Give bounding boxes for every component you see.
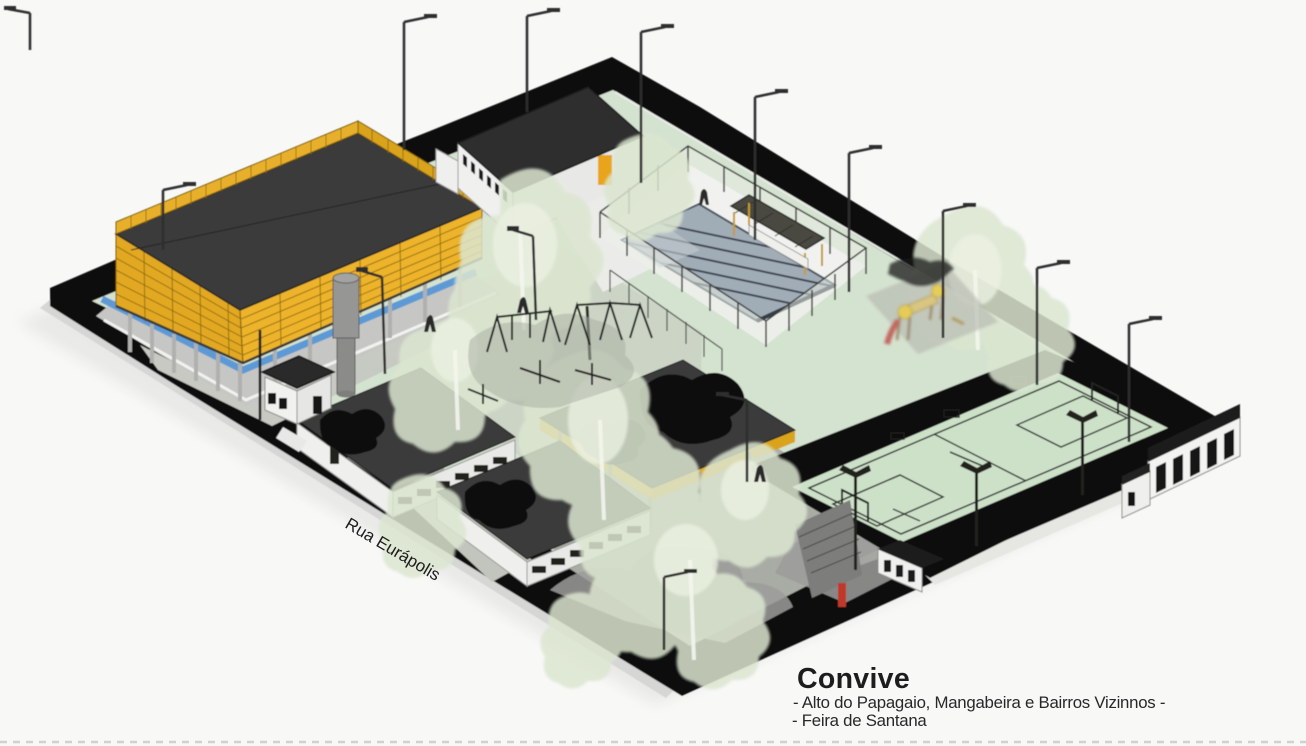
svg-text:- Feira de Santana: - Feira de Santana [792,711,927,730]
svg-text:- Alto do Papagaio, Mangabeira: - Alto do Papagaio, Mangabeira e Bairros… [793,693,1165,712]
svg-text:Convive: Convive [797,663,910,695]
